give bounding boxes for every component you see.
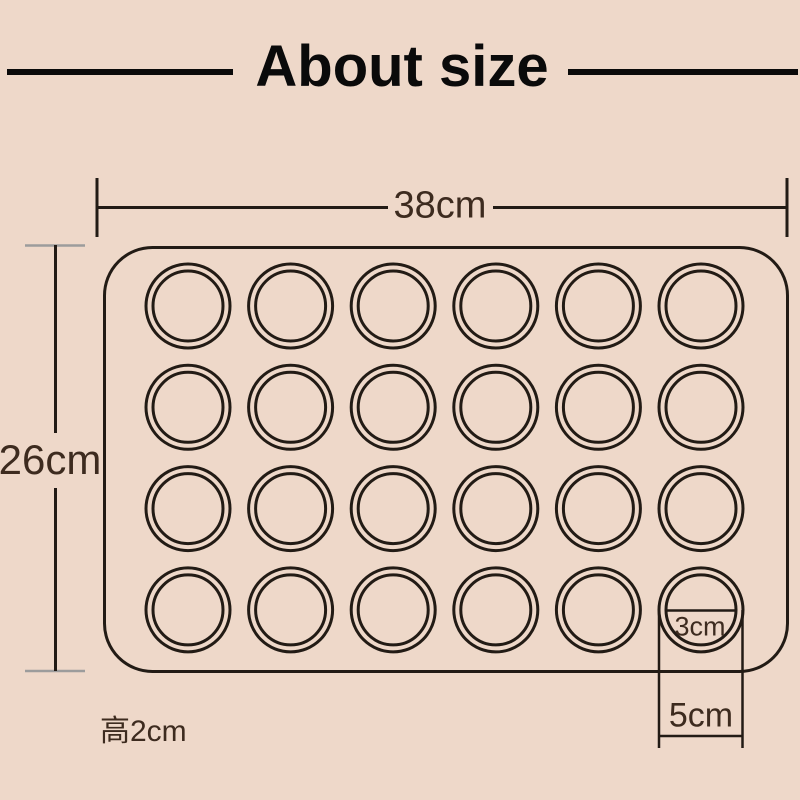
cavity-outer-ring bbox=[454, 467, 538, 551]
cavity-outer-ring bbox=[454, 365, 538, 449]
cavity-outer-ring bbox=[249, 365, 333, 449]
cavity-inner-ring bbox=[153, 271, 223, 341]
cavity-inner-ring bbox=[153, 474, 223, 544]
cavity-grid bbox=[146, 264, 743, 652]
cavity-outer-ring bbox=[556, 264, 640, 348]
cavity-outer-ring bbox=[659, 365, 743, 449]
cavity-inner-ring bbox=[461, 271, 531, 341]
cavity-inner-ring bbox=[256, 271, 326, 341]
cavity-inner-ring bbox=[563, 474, 633, 544]
cavity-outer-ring bbox=[454, 568, 538, 652]
cavity-inner-ring bbox=[461, 474, 531, 544]
cavity-outer-ring bbox=[351, 568, 435, 652]
cavity-inner-ring bbox=[256, 372, 326, 442]
cavity-outer-ring bbox=[659, 467, 743, 551]
cavity-inner-ring bbox=[666, 372, 736, 442]
cavity-outer-ring bbox=[146, 467, 230, 551]
cavity-inner-ring bbox=[256, 474, 326, 544]
cavity-outer-ring bbox=[556, 568, 640, 652]
cavity-outer-ring bbox=[351, 365, 435, 449]
cavity-outer-ring bbox=[249, 264, 333, 348]
thickness-label: 高2cm bbox=[100, 706, 187, 750]
cavity-outer-ring bbox=[351, 467, 435, 551]
cavity-outer-ring bbox=[146, 568, 230, 652]
cavity-inner-ring bbox=[461, 372, 531, 442]
cavity-inner-ring bbox=[358, 372, 428, 442]
cavity-outer-ring bbox=[146, 264, 230, 348]
cavity-inner-ring bbox=[461, 575, 531, 645]
cavity-outer-ring bbox=[249, 568, 333, 652]
cavity-inner-ring bbox=[153, 575, 223, 645]
cavity-inner-ring bbox=[153, 372, 223, 442]
width-dimension-label: 38cm bbox=[394, 185, 487, 228]
cavity-outer-ring bbox=[351, 264, 435, 348]
mat-diagram bbox=[0, 0, 800, 800]
cavity-outer-ring bbox=[556, 467, 640, 551]
outer-diameter-label: 5cm bbox=[669, 697, 733, 736]
cavity-inner-ring bbox=[358, 575, 428, 645]
cavity-inner-ring bbox=[666, 271, 736, 341]
cavity-inner-ring bbox=[563, 575, 633, 645]
size-diagram-page: About size 38cm 26cm bbox=[0, 0, 800, 800]
cavity-inner-ring bbox=[563, 271, 633, 341]
inner-diameter-label: 3cm bbox=[674, 612, 725, 643]
cavity-inner-ring bbox=[358, 271, 428, 341]
cavity-inner-ring bbox=[666, 474, 736, 544]
cavity-inner-ring bbox=[563, 372, 633, 442]
cavity-inner-ring bbox=[358, 474, 428, 544]
cavity-inner-ring bbox=[256, 575, 326, 645]
cavity-outer-ring bbox=[659, 264, 743, 348]
mat-outline bbox=[105, 248, 788, 672]
height-dimension-label: 26cm bbox=[0, 436, 101, 484]
cavity-outer-ring bbox=[556, 365, 640, 449]
cavity-outer-ring bbox=[454, 264, 538, 348]
cavity-outer-ring bbox=[146, 365, 230, 449]
cavity-outer-ring bbox=[249, 467, 333, 551]
